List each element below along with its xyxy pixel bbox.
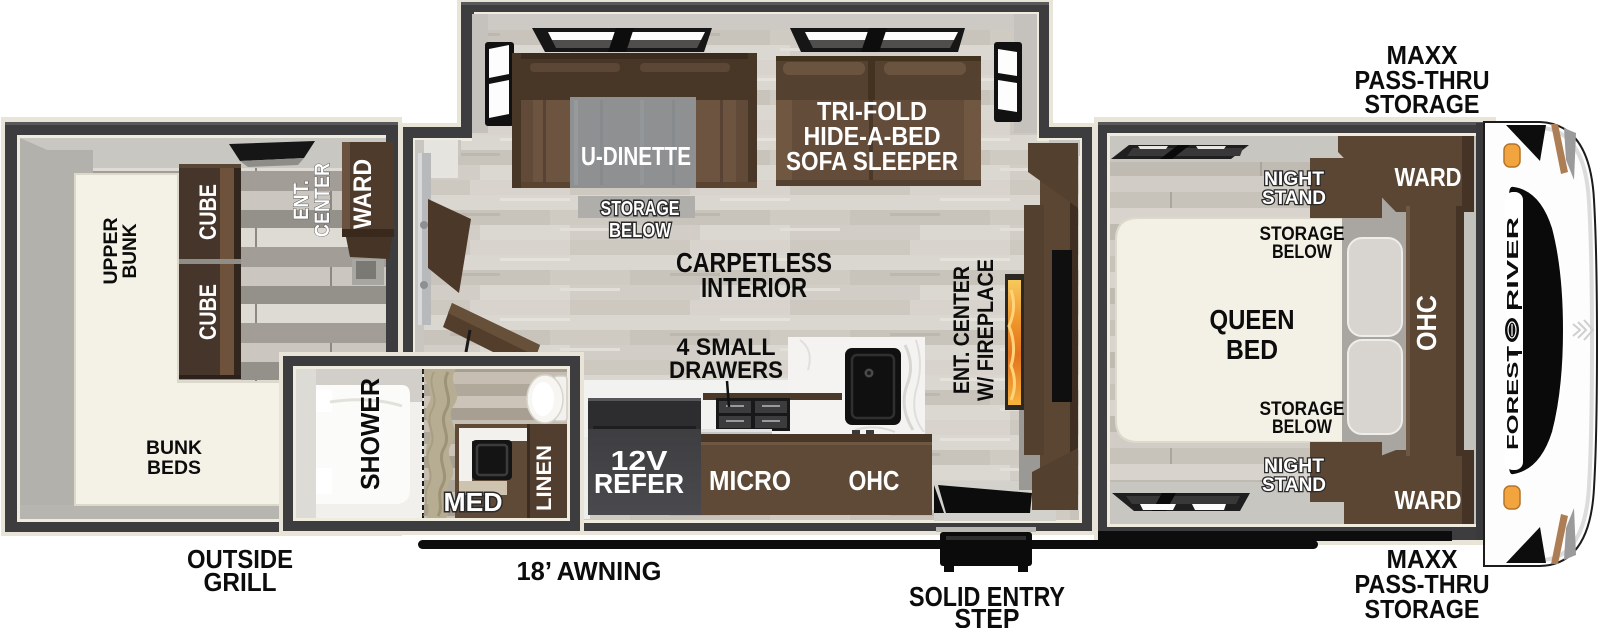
svg-text:FOREST: FOREST [1505,346,1522,450]
svg-text:STAND: STAND [1262,188,1326,209]
svg-text:BUNK: BUNK [119,224,141,279]
svg-text:STAND: STAND [1262,475,1326,496]
svg-text:LINEN: LINEN [533,445,556,511]
svg-text:WARD: WARD [1395,485,1462,515]
svg-text:OHC: OHC [849,465,900,496]
svg-text:RIVER: RIVER [1505,216,1522,311]
svg-text:SOFA SLEEPER: SOFA SLEEPER [786,146,958,176]
svg-text:BELOW: BELOW [1272,242,1332,263]
svg-text:CUBE: CUBE [195,184,222,240]
svg-text:NIGHT: NIGHT [1264,456,1324,477]
svg-text:18’ AWNING: 18’ AWNING [517,556,662,586]
svg-text:DRAWERS: DRAWERS [669,357,783,384]
svg-text:STORAGE: STORAGE [1365,89,1480,119]
svg-text:STORAGE: STORAGE [601,198,680,220]
svg-text:REFER: REFER [594,468,684,499]
svg-text:CENTER: CENTER [311,163,334,237]
svg-text:MICRO: MICRO [709,465,791,496]
svg-text:CUBE: CUBE [195,284,222,340]
svg-text:QUEEN: QUEEN [1210,304,1295,335]
svg-text:INTERIOR: INTERIOR [701,272,807,303]
svg-text:BELOW: BELOW [1272,417,1332,438]
svg-text:WARD: WARD [1395,162,1462,192]
svg-text:OHC: OHC [1411,295,1442,351]
svg-text:W/ FIREPLACE: W/ FIREPLACE [973,259,998,401]
svg-text:MED: MED [444,487,503,517]
svg-text:GRILL: GRILL [204,567,277,597]
svg-text:BEDS: BEDS [147,457,201,479]
svg-text:NIGHT: NIGHT [1264,169,1324,190]
svg-text:BUNK: BUNK [146,437,202,459]
svg-text:U-DINETTE: U-DINETTE [581,141,691,171]
svg-text:STEP: STEP [955,603,1020,628]
svg-text:WARD: WARD [349,159,377,229]
svg-text:SHOWER: SHOWER [355,378,385,490]
svg-text:ENT.: ENT. [290,180,313,220]
svg-text:BED: BED [1226,334,1278,365]
svg-text:ENT. CENTER: ENT. CENTER [949,266,974,394]
svg-text:BELOW: BELOW [609,220,671,242]
svg-text:STORAGE: STORAGE [1365,594,1480,624]
